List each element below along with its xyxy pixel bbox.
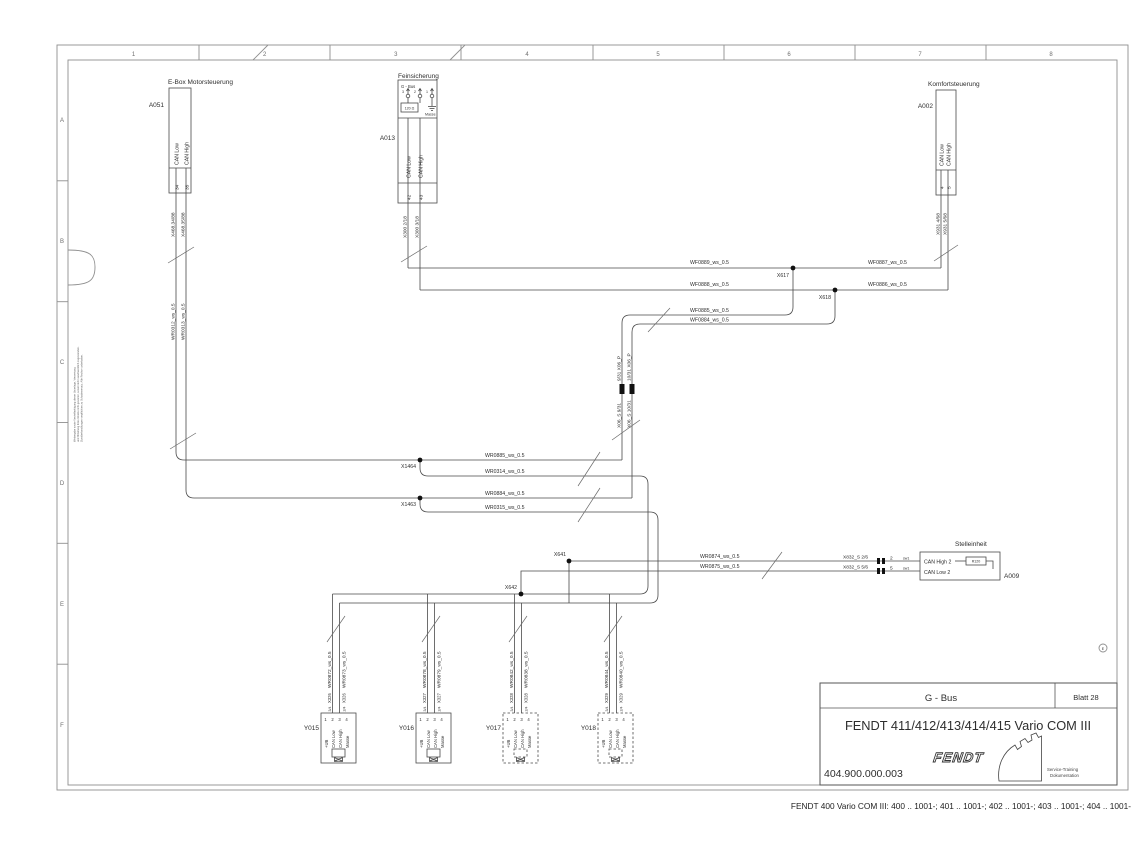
wire-label: WR0878_ws_0.5 (422, 651, 428, 688)
wire-label: WR0842_ws_0.5 (509, 651, 515, 688)
grid-col-label: 6 (787, 52, 791, 58)
twist-marks (168, 245, 958, 642)
wire-label: WR0875_ws_0.5 (700, 564, 740, 570)
valve-connector-pin: 3/4 (423, 707, 427, 712)
wires (176, 193, 948, 713)
valve-pin-label: CAN Low (426, 729, 431, 748)
fendt-sub-text: Dokumentation (1050, 773, 1080, 778)
junction-label: X618 (819, 295, 831, 301)
a002-pin: 5 (947, 186, 953, 189)
component-a051: E-Box Motorsteuerung A051 CAN Low CAN Hi… (149, 79, 234, 340)
valve-pin-label: +UB (419, 740, 424, 748)
y017-id: Y017 (486, 725, 502, 732)
component-y015: WR0872_ws_0.5 WR0873_ws_0.5 X326 X326 3/… (304, 651, 356, 763)
fold-mark (450, 45, 465, 60)
a002-pin-label: CAN Low (940, 144, 946, 166)
valve-connector-pin: 2/4 (620, 707, 624, 712)
wire-can-low-2 (521, 571, 920, 594)
grid-col-label: 4 (525, 52, 529, 58)
component-y017: WR0842_ws_0.5 WR0838_ws_0.5 X328 X328 3/… (486, 651, 538, 763)
grid-col-label: 8 (1049, 52, 1053, 58)
a013-terminal-number: 1 (426, 90, 428, 94)
wire-label: WF0889_ws_0.5 (690, 260, 729, 266)
a009-wire-tag: sw1 (903, 557, 909, 561)
valve-connector-pin: 2/4 (438, 707, 442, 712)
fendt-brand-text: FENDT (932, 750, 985, 765)
bus-inline-connectors: 9/31 X06_P 10/31 X06_P X06_S 9/31 X06_S … (617, 353, 635, 428)
grid-row-label: F (60, 723, 64, 729)
junction-label: X642 (505, 585, 517, 591)
junction-label: X1463 (401, 502, 416, 508)
junction-label: X1464 (401, 464, 416, 470)
drawing-frame: 1 2 3 4 5 6 7 8 A B C D E F E (57, 45, 1128, 790)
valve-connector-pin: 3/4 (328, 707, 332, 712)
wire-label: WR0872_ws_0.5 (327, 651, 333, 688)
titleblock-system: G - Bus (925, 693, 957, 704)
valve-pin-label: Masse (527, 735, 532, 748)
component-y018: WR0844_ws_0.5 WR0840_ws_0.5 X329 X329 3/… (581, 651, 633, 763)
y015-id: Y015 (304, 725, 320, 732)
valve-connector-pin: 3/4 (510, 707, 514, 712)
a009-input-row-1: X832_S 2/6 2 sw1 (843, 555, 909, 565)
a009-conn-label: X832_S 5/6 (843, 565, 868, 571)
wire-label: WR0874_ws_0.5 (700, 554, 740, 560)
valve-pin-label: Masse (345, 735, 350, 748)
y018-id: Y018 (581, 725, 597, 732)
a013-terminal-number: 3 (402, 90, 404, 94)
a013-resistor: 120 Ω (405, 107, 415, 111)
junction-x1463 (418, 496, 423, 501)
wire-label: WF0888_ws_0.5 (690, 282, 729, 288)
wire-label: WR0873_ws_0.5 (342, 651, 348, 688)
wire-label: WF0886_ws_0.5 (868, 282, 907, 288)
a009-input-row-2: X832_S 5/6 5 sw1 (843, 565, 909, 575)
valve-pin-label: +UB (506, 740, 511, 748)
y016-id: Y016 (399, 725, 415, 732)
valve-connector: X328 (509, 693, 514, 703)
a013-id: A013 (380, 135, 396, 142)
valve-connector: X329 (604, 693, 609, 703)
connector-label: X06_S 10/31 (627, 400, 633, 428)
disclaimer-line: Zuwiderhandlungen verpflichten zu Schade… (80, 354, 84, 442)
a002-title: Komfortsteuerung (928, 81, 980, 88)
valve-pin-label: CAN High (338, 729, 343, 748)
valve-pin-label: +UB (601, 740, 606, 748)
grid-row-label: B (60, 239, 64, 245)
wire-label: WR0844_ws_0.5 (604, 651, 610, 688)
title-block: G - Bus Blatt 28 FENDT 411/412/413/414/4… (820, 683, 1117, 785)
titleblock-sheet: Blatt 28 (1073, 693, 1098, 702)
grid-row-label: D (60, 481, 65, 487)
a002-pin-label: CAN High (947, 143, 953, 166)
valve-connector-pin: 2/4 (525, 707, 529, 712)
valve-connector-pin: 2/4 (343, 707, 347, 712)
revision-mark: E (1102, 647, 1105, 651)
a051-title: E-Box Motorsteuerung (168, 79, 233, 86)
valve-pin-label: CAN Low (513, 729, 518, 748)
valve-pin-label: CAN Low (331, 729, 336, 748)
grid-col-label: 7 (918, 52, 922, 58)
valve-connector: X328 (524, 693, 529, 703)
component-a013: Feinsicherung A013 G - Bus 3 2 1 120 Ω M… (380, 73, 439, 238)
disclaimer-text: Weitergabe sowie Vervielfaeltigung diese… (73, 346, 84, 442)
a009-pin: 5 (890, 566, 893, 572)
junction-x641 (567, 559, 572, 564)
valve-connector: X326 (342, 693, 347, 703)
a013-pin-label: CAN High (419, 155, 425, 178)
wire-label: WF0885_ws_0.5 (690, 308, 729, 314)
a009-title: Stelleinheit (955, 541, 987, 548)
a002-id: A002 (918, 103, 934, 110)
connector-label: 10/31 X06_P (627, 353, 633, 381)
border-notch (68, 250, 95, 285)
a009-id: A009 (1004, 573, 1020, 580)
a009-resistor: R120 (972, 560, 981, 564)
a013-pin: 43 (419, 194, 425, 200)
grid-col-label: 1 (132, 52, 136, 58)
connector-label: 9/31 X06_P (617, 356, 623, 381)
a051-id: A051 (149, 102, 165, 109)
a009-conn-label: X832_S 2/6 (843, 555, 868, 561)
wire-labels: WF0889_ws_0.5 WF0887_ws_0.5 WF0888_ws_0.… (485, 260, 907, 570)
wire-label: WF0884_ws_0.5 (690, 318, 729, 324)
a013-terminal-number: 2 (414, 90, 416, 94)
valve-pin-label: CAN High (615, 729, 620, 748)
a009-pin: 2 (890, 556, 893, 562)
valve-pin-label: Masse (622, 735, 627, 748)
connector-label: X06_S 9/31 (617, 403, 623, 428)
valve-connector: X326 (327, 693, 332, 703)
a002-pin: 4 (940, 186, 946, 189)
wire-label: WR0315_ws_0.5 (485, 505, 525, 511)
junction-label: X641 (554, 552, 566, 558)
a013-pin-label: CAN Low (407, 156, 413, 178)
wire-label: WR0314_ws_0.5 (485, 469, 525, 475)
a013-pin: 42 (407, 194, 413, 200)
fendt-sub-text: Service-Training (1047, 767, 1079, 772)
component-y016: WR0878_ws_0.5 WR0879_ws_0.5 X327 X327 3/… (399, 651, 451, 763)
junction-label: X617 (777, 273, 789, 279)
grid-col-label: 3 (394, 52, 398, 58)
a051-pin: 34 (175, 184, 181, 190)
a051-pin: 35 (185, 184, 191, 190)
wire-label: WR0840_ws_0.5 (619, 651, 625, 688)
valve-pin-label: CAN Low (608, 729, 613, 748)
component-a009: Stelleinheit CAN High 2 CAN Low 2 R120 A… (843, 541, 1020, 580)
a009-signal: CAN Low 2 (924, 570, 950, 576)
disclaimer-line: und Mitteilung ihres Inhalts nicht gesta… (76, 346, 80, 442)
wire-label: WR0885_ws_0.5 (485, 453, 525, 459)
grid-row-label: E (60, 602, 64, 608)
valve-pin-label: CAN High (520, 729, 525, 748)
a051-pin-label: CAN Low (175, 143, 181, 165)
a013-ground-label: Masse (425, 113, 436, 117)
wire-label: WR0879_ws_0.5 (437, 651, 443, 688)
a009-wire-tag: sw1 (903, 567, 909, 571)
junction-x642 (519, 592, 524, 597)
titleblock-title: FENDT 411/412/413/414/415 Vario COM III (845, 718, 1091, 733)
wiring-diagram-canvas: 1 2 3 4 5 6 7 8 A B C D E F E Weitergabe… (0, 0, 1134, 842)
valve-connector: X327 (422, 693, 427, 703)
wire-label: WF0887_ws_0.5 (868, 260, 907, 266)
junction-x618 (833, 288, 838, 293)
grid-col-label: 2 (263, 52, 267, 58)
valve-pin-label: +UB (324, 740, 329, 748)
wire-label: WR0838_ws_0.5 (524, 651, 530, 688)
grid-row-label: C (60, 360, 65, 366)
wire-label: WR0884_ws_0.5 (485, 491, 525, 497)
valve-pin-label: Masse (440, 735, 445, 748)
a009-signal: CAN High 2 (924, 560, 952, 566)
a051-pin-label: CAN High (185, 142, 191, 165)
valve-pin-label: CAN High (433, 729, 438, 748)
grid-row-label: A (60, 118, 64, 124)
junction-x1464 (418, 458, 423, 463)
valve-connector: X327 (437, 693, 442, 703)
valve-connector: X329 (619, 693, 624, 703)
grid-col-label: 5 (656, 52, 660, 58)
component-a002: Komfortsteuerung A002 CAN Low CAN High 4… (918, 81, 980, 235)
valve-connector-pin: 3/4 (605, 707, 609, 712)
titleblock-doc-number: 404.900.000.003 (824, 768, 903, 780)
junction-x617 (791, 266, 796, 271)
page-caption: FENDT 400 Vario COM III: 400 .. 1001-; 4… (791, 801, 1131, 811)
schematic-page: 1 2 3 4 5 6 7 8 A B C D E F E Weitergabe… (0, 0, 1134, 842)
a013-title: Feinsicherung (398, 73, 439, 80)
disclaimer-line: Weitergabe sowie Vervielfaeltigung diese… (73, 367, 77, 442)
